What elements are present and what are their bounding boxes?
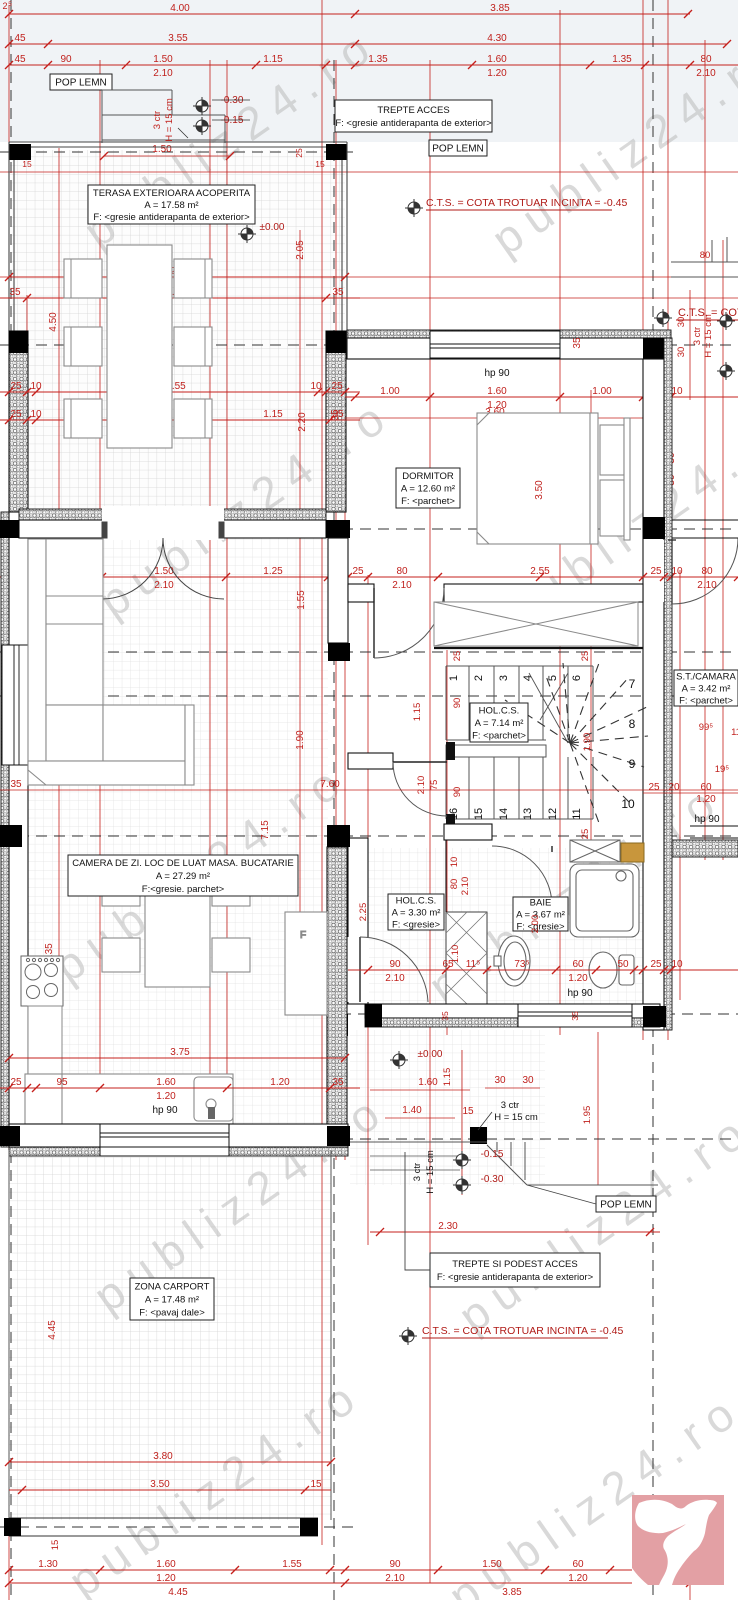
svg-text:25: 25 xyxy=(10,381,22,392)
svg-text:1.15: 1.15 xyxy=(412,703,423,722)
svg-text:HOL.C.S.: HOL.C.S. xyxy=(479,705,520,716)
svg-text:3 ctr: 3 ctr xyxy=(152,111,163,129)
svg-text:1.50: 1.50 xyxy=(154,566,174,577)
svg-text:75: 75 xyxy=(429,780,440,791)
svg-text:6: 6 xyxy=(571,675,583,681)
svg-text:3.50: 3.50 xyxy=(534,480,545,500)
svg-text:10: 10 xyxy=(621,797,635,811)
svg-text:A = 3.42 m²: A = 3.42 m² xyxy=(682,683,731,694)
svg-text:1.60: 1.60 xyxy=(156,1077,176,1088)
svg-text:HOL.C.S.: HOL.C.S. xyxy=(396,895,437,906)
svg-text:8: 8 xyxy=(629,717,636,731)
svg-text:-0.30: -0.30 xyxy=(221,95,244,106)
svg-text:F: F xyxy=(300,930,306,941)
svg-text:2: 2 xyxy=(473,675,485,681)
svg-text:2.25: 2.25 xyxy=(358,903,369,922)
svg-text:10: 10 xyxy=(671,959,683,970)
svg-text:2.10: 2.10 xyxy=(696,68,716,79)
svg-text:A = 7.14 m²: A = 7.14 m² xyxy=(475,718,524,729)
svg-text:hp 90: hp 90 xyxy=(152,1105,177,1116)
svg-text:25: 25 xyxy=(10,1077,22,1088)
svg-text:60: 60 xyxy=(572,959,584,970)
svg-text:1.20: 1.20 xyxy=(487,68,507,79)
svg-text:35: 35 xyxy=(572,337,583,349)
svg-text:2.55: 2.55 xyxy=(530,566,550,577)
svg-text:1.30: 1.30 xyxy=(38,1559,58,1570)
svg-text:90: 90 xyxy=(389,1559,401,1570)
svg-text:A = 17.58 m²: A = 17.58 m² xyxy=(144,200,198,211)
svg-text:1.95: 1.95 xyxy=(582,1106,593,1125)
svg-text:11: 11 xyxy=(571,808,583,819)
svg-text:F: <parchet>: F: <parchet> xyxy=(401,496,455,507)
svg-text:1: 1 xyxy=(448,675,460,681)
svg-text:35: 35 xyxy=(332,1077,344,1088)
svg-text:25: 25 xyxy=(648,782,660,793)
svg-text:2.05: 2.05 xyxy=(295,240,306,260)
svg-text:H = 15 cm: H = 15 cm xyxy=(425,1150,436,1194)
svg-text:POP LEMN: POP LEMN xyxy=(55,78,107,89)
svg-text:-0.15: -0.15 xyxy=(221,115,244,126)
svg-text:10: 10 xyxy=(671,386,683,397)
svg-text:hp 90: hp 90 xyxy=(484,368,509,379)
svg-text:H = 15 cm: H = 15 cm xyxy=(703,314,714,358)
svg-text:30: 30 xyxy=(522,1075,534,1086)
svg-text:25: 25 xyxy=(580,651,591,662)
svg-text:10: 10 xyxy=(30,381,42,392)
svg-text:1.20: 1.20 xyxy=(156,1091,176,1102)
svg-text:3.75: 3.75 xyxy=(170,1047,190,1058)
svg-text:1.20: 1.20 xyxy=(568,973,588,984)
svg-text:C.T.S. = COTA TROTUAR INCINTA: C.T.S. = COTA TROTUAR INCINTA = -0.45 xyxy=(426,197,627,209)
svg-text:H = 15 cm: H = 15 cm xyxy=(494,1112,538,1123)
svg-text:-0.30: -0.30 xyxy=(481,1174,504,1185)
svg-text:F:<gresie. parchet>: F:<gresie. parchet> xyxy=(142,884,225,895)
svg-text:ZONA CARPORT: ZONA CARPORT xyxy=(135,1281,210,1292)
svg-text:F: <parchet>: F: <parchet> xyxy=(472,730,526,741)
svg-text:2: 2 xyxy=(2,1,7,11)
svg-text:F: <gresie antiderapanta de ex: F: <gresie antiderapanta de exterior> xyxy=(93,212,250,223)
svg-text:±0.00: ±0.00 xyxy=(260,222,285,233)
svg-text:5: 5 xyxy=(8,1,12,8)
svg-text:50: 50 xyxy=(617,959,629,970)
svg-text:1.15: 1.15 xyxy=(263,409,283,420)
svg-text:16: 16 xyxy=(448,808,460,820)
svg-text:15: 15 xyxy=(22,159,32,169)
svg-text:25: 25 xyxy=(580,829,591,840)
svg-text:15: 15 xyxy=(315,159,325,169)
svg-text:1.35: 1.35 xyxy=(368,54,388,65)
svg-text:BAIE: BAIE xyxy=(530,897,552,908)
svg-text:10: 10 xyxy=(671,566,683,577)
svg-text:1.00: 1.00 xyxy=(592,386,612,397)
svg-text:45: 45 xyxy=(14,33,26,44)
svg-text:4.30: 4.30 xyxy=(487,33,507,44)
svg-text:S.T./CAMARA: S.T./CAMARA xyxy=(676,671,736,682)
svg-text:POP LEMN: POP LEMN xyxy=(432,144,484,155)
svg-text:2.10: 2.10 xyxy=(392,580,412,591)
svg-text:1.25: 1.25 xyxy=(263,566,283,577)
svg-text:73⁵: 73⁵ xyxy=(514,959,529,970)
svg-text:80: 80 xyxy=(396,566,408,577)
svg-text:90: 90 xyxy=(389,959,401,970)
svg-text:3 ctr: 3 ctr xyxy=(692,327,703,345)
svg-text:3.55: 3.55 xyxy=(168,33,188,44)
svg-text:1.60: 1.60 xyxy=(156,1559,176,1570)
svg-text:1.20: 1.20 xyxy=(696,794,716,805)
svg-text:1.00: 1.00 xyxy=(380,386,400,397)
svg-text:1.55: 1.55 xyxy=(282,1559,302,1570)
svg-text:3.50: 3.50 xyxy=(150,1479,170,1490)
svg-text:15: 15 xyxy=(462,1106,474,1117)
svg-text:1.15: 1.15 xyxy=(442,1068,453,1087)
svg-text:80: 80 xyxy=(700,54,712,65)
svg-text:1.50: 1.50 xyxy=(482,1559,502,1570)
svg-text:POP LEMN: POP LEMN xyxy=(600,1200,652,1211)
svg-text:80: 80 xyxy=(701,566,713,577)
svg-text:1.55: 1.55 xyxy=(296,590,307,610)
svg-text:7: 7 xyxy=(629,677,636,691)
svg-text:4.45: 4.45 xyxy=(47,1320,58,1340)
svg-text:1.50: 1.50 xyxy=(153,54,173,65)
svg-text:80: 80 xyxy=(700,250,711,261)
svg-text:F: <gresie>: F: <gresie> xyxy=(392,919,441,930)
svg-text:3.80: 3.80 xyxy=(153,1451,173,1462)
svg-text:H = 15 cm: H = 15 cm xyxy=(164,98,175,142)
svg-text:10: 10 xyxy=(30,409,42,420)
svg-text:1.40: 1.40 xyxy=(402,1105,422,1116)
svg-text:1.60: 1.60 xyxy=(487,386,507,397)
svg-text:2.30: 2.30 xyxy=(438,1221,458,1232)
svg-text:35: 35 xyxy=(570,1011,580,1021)
svg-text:30: 30 xyxy=(494,1075,506,1086)
svg-text:90: 90 xyxy=(60,54,72,65)
svg-text:-0.15: -0.15 xyxy=(481,1149,504,1160)
svg-text:1.90: 1.90 xyxy=(295,730,306,750)
svg-text:25: 25 xyxy=(331,381,343,392)
svg-text:15: 15 xyxy=(50,1540,61,1551)
svg-text:TREPTE ACCES: TREPTE ACCES xyxy=(377,105,449,116)
svg-text:3 ctr: 3 ctr xyxy=(501,1100,519,1111)
svg-text:TREPTE SI PODEST ACCES: TREPTE SI PODEST ACCES xyxy=(452,1259,577,1270)
svg-text:1.20: 1.20 xyxy=(270,1077,290,1088)
svg-text:2.10: 2.10 xyxy=(460,877,471,896)
svg-text:60: 60 xyxy=(572,1559,584,1570)
svg-text:3 ctr: 3 ctr xyxy=(412,1163,423,1181)
svg-text:F: <pavaj dale>: F: <pavaj dale> xyxy=(139,1307,205,1318)
svg-text:15: 15 xyxy=(310,1479,322,1490)
svg-text:45: 45 xyxy=(14,54,26,65)
svg-text:25: 25 xyxy=(650,566,662,577)
svg-text:4.00: 4.00 xyxy=(170,3,190,14)
svg-text:60: 60 xyxy=(700,782,712,793)
svg-text:CAMERA DE ZI. LOC DE LUAT MASA: CAMERA DE ZI. LOC DE LUAT MASA. BUCATARI… xyxy=(72,858,294,869)
svg-text:F: <gresie antiderapanta de ex: F: <gresie antiderapanta de exterior> xyxy=(437,1272,594,1283)
svg-text:4: 4 xyxy=(522,675,534,681)
svg-text:10: 10 xyxy=(310,381,322,392)
svg-text:1.50: 1.50 xyxy=(152,144,172,155)
svg-text:1.60: 1.60 xyxy=(487,54,507,65)
svg-text:25: 25 xyxy=(650,959,662,970)
svg-text:25: 25 xyxy=(10,409,22,420)
svg-text:A = 3.30 m²: A = 3.30 m² xyxy=(392,907,441,918)
svg-text:2.10: 2.10 xyxy=(416,776,427,795)
svg-text:10: 10 xyxy=(449,857,460,868)
svg-text:90: 90 xyxy=(452,787,463,798)
svg-text:4.45: 4.45 xyxy=(168,1587,188,1598)
svg-text:35: 35 xyxy=(440,1011,450,1021)
svg-text:7.60: 7.60 xyxy=(320,779,340,790)
svg-text:65: 65 xyxy=(442,959,454,970)
svg-text:11⁵: 11⁵ xyxy=(466,959,481,970)
svg-text:hp 90: hp 90 xyxy=(694,814,719,825)
svg-text:4.50: 4.50 xyxy=(48,312,59,332)
svg-text:15: 15 xyxy=(473,808,485,820)
svg-text:99⁵: 99⁵ xyxy=(699,722,714,733)
svg-text:5: 5 xyxy=(547,675,559,681)
svg-text:1.20: 1.20 xyxy=(568,1573,588,1584)
svg-text:14: 14 xyxy=(498,808,510,820)
svg-text:13: 13 xyxy=(522,808,534,820)
svg-text:A = 17.48 m²: A = 17.48 m² xyxy=(145,1294,199,1305)
svg-text:20: 20 xyxy=(668,782,680,793)
svg-text:1.35: 1.35 xyxy=(612,54,632,65)
svg-text:19⁵: 19⁵ xyxy=(715,764,730,775)
svg-text:80: 80 xyxy=(449,879,460,890)
svg-text:3.85: 3.85 xyxy=(490,3,510,14)
svg-text:A = 27.29 m²: A = 27.29 m² xyxy=(156,871,210,882)
svg-text:25: 25 xyxy=(352,566,364,577)
svg-text:TERASA EXTERIOARA ACOPERITA: TERASA EXTERIOARA ACOPERITA xyxy=(93,188,251,199)
svg-text:30: 30 xyxy=(676,317,687,328)
svg-text:25: 25 xyxy=(452,651,463,662)
svg-text:35: 35 xyxy=(10,779,22,790)
svg-text:C.T.S. = COTA TROTUAR INCINTA: C.T.S. = COTA TROTUAR INCINTA = -0.45 xyxy=(422,1325,623,1337)
svg-text:90: 90 xyxy=(452,698,463,709)
svg-text:2.10: 2.10 xyxy=(385,973,405,984)
svg-text:hp 90: hp 90 xyxy=(567,988,592,999)
svg-text:7.15: 7.15 xyxy=(260,820,271,840)
svg-text:11: 11 xyxy=(731,727,738,738)
svg-text:2.10: 2.10 xyxy=(385,1573,405,1584)
svg-text:2.10: 2.10 xyxy=(153,68,173,79)
svg-text:95: 95 xyxy=(56,1077,68,1088)
svg-text:A = 12.60 m²: A = 12.60 m² xyxy=(401,483,455,494)
svg-text:±0.00: ±0.00 xyxy=(418,1049,443,1060)
svg-text:35: 35 xyxy=(9,287,21,298)
svg-text:3.85: 3.85 xyxy=(502,1587,522,1598)
svg-text:2.10: 2.10 xyxy=(154,580,174,591)
svg-text:30: 30 xyxy=(676,347,687,358)
svg-text:2.00: 2.00 xyxy=(530,915,541,934)
svg-text:9: 9 xyxy=(629,757,636,771)
svg-text:1.90: 1.90 xyxy=(582,733,593,752)
svg-text:25: 25 xyxy=(294,148,304,158)
svg-text:35: 35 xyxy=(332,287,344,298)
svg-text:2.20: 2.20 xyxy=(297,412,308,432)
svg-text:35: 35 xyxy=(330,409,341,421)
svg-text:12: 12 xyxy=(547,808,559,820)
svg-text:1.20: 1.20 xyxy=(156,1573,176,1584)
svg-text:1.15: 1.15 xyxy=(263,54,283,65)
svg-text:F: <parchet>: F: <parchet> xyxy=(679,695,733,706)
svg-text:F: <gresie antiderapanta de ex: F: <gresie antiderapanta de exterior> xyxy=(335,118,492,129)
svg-text:DORMITOR: DORMITOR xyxy=(402,471,454,482)
svg-text:1.60: 1.60 xyxy=(418,1077,438,1088)
svg-text:3: 3 xyxy=(498,675,510,681)
